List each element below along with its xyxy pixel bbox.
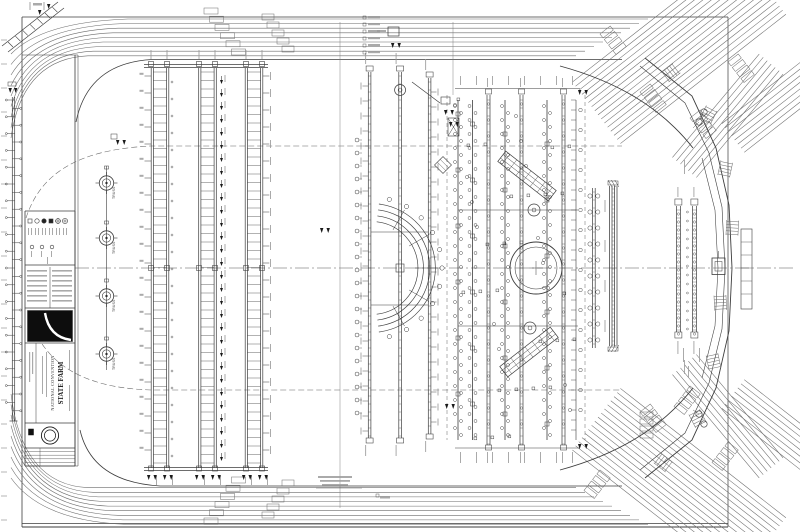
greeked-text — [677, 341, 678, 354]
circle — [474, 140, 477, 143]
circle — [693, 261, 695, 263]
circle — [543, 217, 546, 220]
circle — [171, 115, 173, 117]
circle — [5, 284, 7, 286]
greeked-text — [270, 293, 271, 301]
line — [715, 309, 727, 310]
line — [412, 82, 440, 103]
greeked-text — [140, 430, 144, 432]
circle — [507, 322, 510, 325]
path — [11, 24, 639, 65]
rect — [204, 518, 218, 524]
line — [672, 375, 759, 478]
greeked-text — [51, 251, 52, 257]
circle — [487, 103, 489, 105]
circle — [549, 392, 552, 395]
circle — [487, 215, 489, 217]
circle — [106, 295, 108, 297]
drawing-sheet: STATE FARM NATIONAL CONVENTION TRUSS TRU… — [0, 0, 800, 532]
stair-run — [728, 54, 754, 82]
circle — [501, 147, 504, 150]
circle — [686, 247, 688, 249]
greeked-text — [322, 484, 348, 486]
circle — [543, 427, 546, 430]
circle — [543, 245, 546, 248]
greeked-text — [361, 398, 362, 405]
greeked-text — [47, 257, 48, 264]
hoist-symbol — [220, 80, 223, 84]
rect — [363, 16, 366, 19]
circle — [355, 281, 359, 285]
greeked-text — [438, 209, 439, 216]
circle — [549, 112, 552, 115]
circle — [474, 252, 477, 255]
circle — [474, 322, 477, 325]
greeked-text — [246, 50, 247, 59]
circle — [468, 301, 471, 304]
greeked-text — [225, 400, 226, 407]
greeked-text — [140, 328, 144, 330]
circle — [520, 263, 522, 265]
greeked-text — [320, 480, 350, 482]
left-wall-truss — [5, 82, 21, 421]
circle — [171, 149, 173, 151]
circle — [487, 423, 489, 425]
greeked-text — [361, 203, 362, 210]
greeked-text — [693, 341, 694, 354]
greeked-text — [438, 194, 439, 201]
circle — [693, 253, 695, 255]
line — [741, 80, 800, 148]
rect — [640, 419, 653, 424]
circle — [50, 245, 54, 249]
greeked-text — [140, 260, 144, 262]
greeked-text — [270, 344, 271, 352]
rect — [597, 470, 610, 482]
circle — [355, 229, 359, 233]
circle — [171, 81, 173, 83]
circle — [501, 273, 504, 276]
greeked-text — [438, 329, 439, 336]
greeked-text — [41, 251, 42, 257]
greeked-text — [225, 309, 226, 316]
greeked-text — [140, 243, 144, 245]
line — [537, 182, 545, 192]
circle — [460, 308, 463, 311]
circle — [171, 200, 173, 202]
circle — [549, 168, 552, 171]
greeked-text — [270, 327, 271, 335]
greeked-text — [438, 359, 439, 366]
circle — [468, 343, 471, 346]
greeked-text — [225, 114, 226, 121]
greeked-text — [32, 352, 33, 374]
circle — [501, 259, 504, 262]
line — [727, 221, 739, 222]
path — [11, 51, 585, 127]
rect — [600, 26, 613, 38]
flag-triangle — [242, 475, 245, 480]
greeked-text — [476, 452, 477, 463]
hoist-symbol — [220, 132, 223, 136]
greeked-text — [225, 348, 226, 355]
circle — [514, 114, 517, 117]
greeked-text — [251, 476, 252, 485]
line — [741, 384, 800, 452]
rect — [149, 62, 154, 67]
greeked-text — [225, 166, 226, 173]
circle — [419, 216, 423, 220]
greeked-text — [204, 476, 205, 485]
greeked-text — [556, 452, 557, 463]
circle — [487, 151, 489, 153]
rect — [674, 403, 687, 415]
truss-label-1: TRUSS — [112, 186, 116, 199]
greeked-text — [140, 345, 144, 347]
greeked-text — [225, 322, 226, 329]
greeked-text — [66, 228, 67, 235]
flag-triangle — [195, 475, 198, 480]
circle — [562, 343, 564, 345]
rect — [486, 243, 489, 246]
circle — [520, 279, 522, 281]
circle — [686, 238, 688, 240]
circle — [579, 268, 583, 272]
rect — [462, 291, 465, 294]
circle — [468, 273, 471, 276]
flag-triangle — [578, 90, 581, 95]
circle — [677, 317, 679, 319]
circle — [474, 336, 477, 339]
path — [11, 415, 594, 497]
circle — [579, 408, 583, 412]
greeked-text — [361, 158, 362, 165]
stair-run — [674, 386, 700, 414]
greeked-text — [270, 208, 271, 216]
circle — [677, 245, 679, 247]
circle — [543, 385, 546, 388]
sheet-border — [1, 2, 728, 527]
seating-bottom-bank — [11, 394, 648, 525]
circle — [355, 151, 359, 155]
rect — [712, 258, 725, 275]
flag-triangle — [445, 404, 448, 409]
circle — [562, 263, 564, 265]
circle — [677, 277, 679, 279]
circle — [355, 372, 359, 376]
seat-cluster — [718, 160, 733, 177]
hoist-symbol — [220, 431, 223, 435]
line — [592, 425, 757, 532]
greeked-text — [270, 276, 271, 284]
greeked-text — [524, 452, 525, 463]
circle — [171, 455, 173, 457]
circle — [454, 203, 457, 206]
circle — [474, 168, 477, 171]
greeked-text — [492, 452, 493, 463]
hoist-symbol — [220, 197, 223, 201]
circle — [20, 393, 22, 395]
seal-stamp — [41, 427, 58, 444]
greeked-text — [361, 83, 362, 90]
circle — [507, 252, 510, 255]
circle — [693, 301, 695, 303]
circle — [693, 325, 695, 327]
greeked-text — [225, 335, 226, 342]
greeked-text — [460, 76, 461, 85]
circle — [475, 225, 478, 228]
greeked-text — [380, 496, 390, 499]
circle — [474, 392, 477, 395]
greeked-text — [508, 452, 509, 463]
line — [604, 0, 769, 123]
circle — [64, 220, 66, 222]
titleblock-client: STATE FARM — [58, 361, 65, 404]
rect — [244, 62, 249, 67]
hoist-symbol — [220, 418, 223, 422]
circle — [487, 263, 489, 265]
greeked-text — [225, 257, 226, 264]
flag-triangle — [452, 404, 455, 409]
hoist-symbol — [220, 353, 223, 357]
greeked-text — [270, 429, 271, 437]
circle — [468, 119, 471, 122]
rect — [561, 445, 567, 450]
circle — [501, 329, 504, 332]
circle — [42, 219, 46, 223]
greeked-text — [69, 385, 70, 411]
circle — [487, 343, 489, 345]
circle — [20, 242, 22, 244]
circle — [507, 182, 510, 185]
circle — [460, 322, 463, 325]
rect — [426, 434, 433, 439]
greeked-text — [140, 379, 144, 381]
path — [30, 320, 622, 390]
path — [11, 468, 639, 520]
circle — [579, 208, 583, 212]
circle — [501, 231, 504, 234]
greeked-text — [361, 113, 362, 120]
circle — [487, 311, 489, 313]
greeked-text — [438, 419, 439, 426]
circle — [507, 140, 510, 143]
circle — [549, 434, 552, 437]
circle — [5, 250, 7, 252]
circle — [474, 364, 477, 367]
greeked-text — [270, 242, 271, 250]
line — [708, 363, 720, 365]
greeked-text — [520, 78, 521, 87]
circle — [355, 411, 359, 415]
circle — [487, 295, 489, 297]
greeked-text — [438, 239, 439, 246]
greeked-text — [140, 396, 144, 398]
circle — [677, 325, 679, 327]
hoist-symbol — [220, 184, 223, 188]
circle — [20, 225, 22, 227]
circle — [468, 105, 471, 108]
greeked-text — [438, 344, 439, 351]
rect — [397, 438, 404, 443]
circle — [693, 317, 695, 319]
circle — [507, 112, 510, 115]
greeked-text — [52, 295, 72, 297]
circle — [562, 199, 564, 201]
circle — [454, 385, 457, 388]
greeked-text — [361, 323, 362, 330]
circle — [106, 237, 108, 239]
circle — [588, 194, 592, 198]
greeked-text — [52, 300, 72, 302]
greeked-text — [225, 439, 226, 446]
greeked-text — [52, 290, 72, 292]
circle — [355, 138, 359, 142]
circle — [460, 182, 463, 185]
circle — [579, 188, 583, 192]
greeked-text — [52, 285, 72, 287]
circle — [468, 427, 471, 430]
circle — [562, 295, 564, 297]
line — [617, 10, 782, 139]
circle — [520, 375, 522, 377]
circle — [454, 147, 457, 150]
rect — [397, 66, 404, 71]
flag-triangle — [258, 475, 261, 480]
hoist-symbol — [220, 171, 223, 175]
circle — [355, 242, 359, 246]
circle — [543, 203, 546, 206]
greeked-text — [361, 233, 362, 240]
rect — [573, 338, 576, 341]
circle — [520, 215, 522, 217]
circle — [460, 420, 463, 423]
line — [592, 0, 757, 107]
flag-triangle — [391, 43, 394, 48]
circle — [507, 350, 510, 353]
circle — [468, 315, 471, 318]
circle — [454, 399, 457, 402]
circle — [507, 420, 510, 423]
line — [608, 405, 773, 532]
circle — [501, 203, 504, 206]
greeked-text — [438, 104, 439, 111]
circle — [355, 177, 359, 181]
rect — [563, 292, 566, 295]
path — [11, 47, 594, 117]
circle — [549, 126, 552, 129]
circle — [487, 231, 489, 233]
rect — [741, 71, 754, 83]
circle — [460, 406, 463, 409]
hoist-symbol — [220, 392, 223, 396]
circle — [454, 259, 457, 262]
circle — [404, 327, 408, 331]
circle — [419, 316, 423, 320]
hoist-flags — [111, 43, 588, 480]
circle — [20, 141, 22, 143]
circle — [579, 348, 583, 352]
circle — [501, 287, 504, 290]
hoist-symbol — [220, 275, 223, 279]
circle — [693, 221, 695, 223]
circle — [549, 378, 552, 381]
circle — [677, 261, 679, 263]
greeked-text — [605, 280, 606, 292]
circle — [395, 85, 406, 96]
circle — [520, 119, 522, 121]
circle — [454, 315, 457, 318]
circle — [693, 293, 695, 295]
circle — [677, 237, 679, 239]
line — [572, 0, 737, 82]
circle — [562, 359, 564, 361]
greeked-text — [688, 366, 689, 378]
rect — [551, 146, 554, 149]
circle — [5, 200, 7, 202]
circle — [596, 322, 600, 326]
seating-top-bank — [11, 8, 648, 138]
circle — [5, 301, 7, 303]
circle — [579, 228, 583, 232]
rect — [721, 448, 734, 460]
greeked-text — [225, 361, 226, 368]
circle — [468, 371, 471, 374]
circle — [487, 199, 489, 201]
circle — [5, 233, 7, 235]
circle — [686, 328, 688, 330]
circle — [549, 350, 552, 353]
circle — [62, 218, 67, 223]
greeked-text — [361, 218, 362, 225]
circle — [543, 273, 546, 276]
circle — [171, 421, 173, 423]
flag-triangle — [398, 43, 401, 48]
seat-cluster — [706, 353, 721, 370]
flag-triangle — [147, 475, 150, 480]
circle — [549, 182, 552, 185]
hoist-symbol — [220, 314, 223, 318]
circle — [468, 399, 471, 402]
circle — [579, 368, 583, 372]
rect — [28, 219, 32, 223]
hoist-symbol — [220, 210, 223, 214]
greeked-text — [508, 76, 509, 85]
hoist-symbol — [220, 457, 223, 461]
greeked-text — [140, 413, 144, 415]
rect — [588, 481, 601, 493]
line — [744, 85, 800, 153]
hoist-symbol — [220, 119, 223, 123]
circle — [474, 280, 477, 283]
hoist-symbol — [220, 366, 223, 370]
greeked-text — [425, 59, 426, 70]
greeked-text — [438, 404, 439, 411]
right-video-trusses — [588, 160, 689, 378]
hoist-symbol — [220, 106, 223, 110]
circle — [454, 217, 457, 220]
circle — [562, 135, 564, 137]
circle — [520, 343, 522, 345]
circle — [579, 288, 583, 292]
greeked-text — [225, 218, 226, 225]
circle — [596, 242, 600, 246]
circle — [588, 306, 592, 310]
greeked-text — [438, 269, 439, 276]
greeked-text — [572, 76, 573, 85]
circle — [387, 334, 391, 338]
greeked-text — [270, 106, 271, 114]
